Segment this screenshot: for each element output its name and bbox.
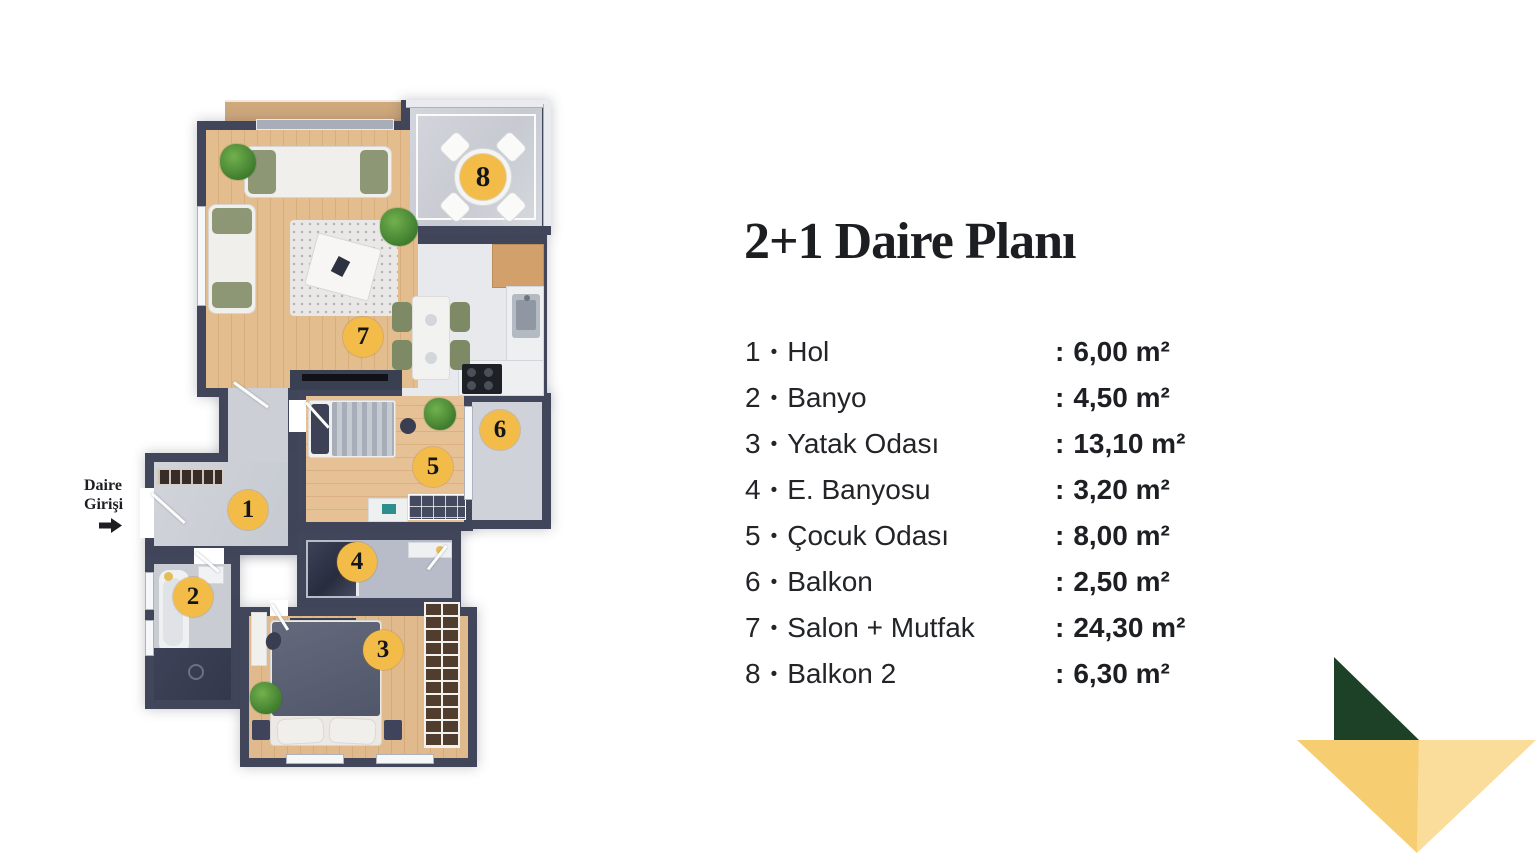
dining-table <box>412 296 450 380</box>
legend-colon: : <box>1055 520 1064 551</box>
legend-area: 13,10 m² <box>1073 428 1185 459</box>
balcony-parapet-top <box>406 100 551 108</box>
bed-blanket <box>332 402 394 456</box>
legend-name: Salon + Mutfak <box>787 612 975 643</box>
legend-item-e-banyosu: 4•E. Banyosu :3,20 m² <box>745 467 1225 513</box>
legend-colon: : <box>1055 428 1064 459</box>
plan-badge-4: 4 <box>337 542 377 582</box>
legend-name: Yatak Odası <box>787 428 939 459</box>
entrance-label: Daire Girişi <box>84 476 123 514</box>
window-bedroom-1 <box>286 754 344 764</box>
corner-decoration <box>1296 657 1536 864</box>
legend-area: 2,50 m² <box>1073 566 1170 597</box>
page: 1 2 3 4 5 6 7 8 Daire Girişi 2+1 Daire P… <box>0 0 1536 864</box>
entrance-label-line2: Girişi <box>84 495 123 514</box>
legend-name: Çocuk Odası <box>787 520 949 551</box>
legend-num: 2 <box>745 382 761 413</box>
legend-separator: • <box>771 342 778 363</box>
sofa-cushion <box>212 282 252 308</box>
legend-item-balkon-2: 8•Balkon 2 :6,30 m² <box>745 651 1225 697</box>
deco-yellow-triangle-light <box>1417 740 1536 853</box>
plan-badge-2: 2 <box>173 577 213 617</box>
legend-area: 8,00 m² <box>1073 520 1170 551</box>
faucet <box>524 295 530 301</box>
kitchen-counter-wood <box>492 244 544 288</box>
plant <box>220 144 256 180</box>
dining-chair <box>450 302 470 332</box>
legend-name: Banyo <box>787 382 866 413</box>
entrance-arrow-icon <box>99 518 123 538</box>
legend-name: E. Banyosu <box>787 474 930 505</box>
legend-item-cocuk-odasi: 5•Çocuk Odası :8,00 m² <box>745 513 1225 559</box>
burner <box>467 368 476 377</box>
legend-separator: • <box>771 664 778 685</box>
legend-area: 6,30 m² <box>1073 658 1170 689</box>
legend-area: 24,30 m² <box>1073 612 1185 643</box>
plan-badge-7: 7 <box>343 317 383 357</box>
nightstand <box>384 720 402 740</box>
dining-chair <box>392 302 412 332</box>
bed-pillow <box>276 717 324 745</box>
legend-name: Hol <box>787 336 829 367</box>
burner <box>467 381 476 390</box>
plate <box>425 352 437 364</box>
legend-separator: • <box>771 526 778 547</box>
sofa-cushion <box>212 208 252 234</box>
legend-area: 4,50 m² <box>1073 382 1170 413</box>
plan-badge-3: 3 <box>363 630 403 670</box>
dining-chair <box>392 340 412 370</box>
legend-colon: : <box>1055 612 1064 643</box>
legend-item-banyo: 2•Banyo :4,50 m² <box>745 375 1225 421</box>
bed-pillow <box>328 717 376 745</box>
legend-colon: : <box>1055 566 1064 597</box>
legend-num: 4 <box>745 474 761 505</box>
wardrobe <box>424 602 460 748</box>
window-bathroom-1 <box>145 572 154 610</box>
plan-badge-6: 6 <box>480 410 520 450</box>
legend-name: Balkon 2 <box>787 658 896 689</box>
legend-separator: • <box>771 388 778 409</box>
rug <box>408 494 466 520</box>
room-legend: 1•Hol :6,00 m² 2•Banyo :4,50 m² 3•Yatak … <box>745 329 1225 697</box>
sink-basin <box>516 300 536 330</box>
legend-item-salon-mutfak: 7•Salon + Mutfak :24,30 m² <box>745 605 1225 651</box>
plant <box>250 682 282 714</box>
window-salon-left <box>197 206 206 306</box>
plate <box>425 314 437 326</box>
legend-num: 1 <box>745 336 761 367</box>
washing-machine <box>188 664 204 680</box>
deco-yellow-triangle-dark <box>1297 740 1419 853</box>
window-child-room <box>464 406 473 500</box>
legend-item-hol: 1•Hol :6,00 m² <box>745 329 1225 375</box>
window-salon-top <box>256 119 394 130</box>
tv <box>302 374 388 381</box>
burner <box>484 381 493 390</box>
vanity-desk <box>251 612 267 666</box>
window-bedroom-2 <box>376 754 434 764</box>
legend-area: 6,00 m² <box>1073 336 1170 367</box>
laptop <box>382 504 396 514</box>
plan-badge-8: 8 <box>460 154 506 200</box>
legend-num: 3 <box>745 428 761 459</box>
door-opening <box>289 400 306 432</box>
balcony-parapet-right <box>543 104 551 226</box>
window-bathroom-2 <box>145 620 154 656</box>
basket <box>164 572 173 581</box>
legend-item-balkon: 6•Balkon :2,50 m² <box>745 559 1225 605</box>
legend-colon: : <box>1055 382 1064 413</box>
sofa-cushion <box>360 150 388 194</box>
legend-num: 8 <box>745 658 761 689</box>
bed-duvet <box>272 622 380 716</box>
legend-separator: • <box>771 572 778 593</box>
plant <box>424 398 456 430</box>
page-title: 2+1 Daire Planı <box>744 212 1075 271</box>
plan-badge-1: 1 <box>228 490 268 530</box>
burner <box>484 368 493 377</box>
entrance-label-line1: Daire <box>84 476 123 495</box>
nightstand <box>252 720 270 740</box>
deco-green-triangle <box>1334 657 1419 740</box>
floor-plan: 1 2 3 4 5 6 7 8 <box>140 100 560 772</box>
legend-name: Balkon <box>787 566 873 597</box>
legend-colon: : <box>1055 474 1064 505</box>
side-table <box>400 418 416 434</box>
legend-area: 3,20 m² <box>1073 474 1170 505</box>
legend-separator: • <box>771 618 778 639</box>
legend-num: 6 <box>745 566 761 597</box>
plan-badge-5: 5 <box>413 447 453 487</box>
legend-num: 7 <box>745 612 761 643</box>
legend-item-yatak-odasi: 3•Yatak Odası :13,10 m² <box>745 421 1225 467</box>
legend-colon: : <box>1055 336 1064 367</box>
legend-separator: • <box>771 434 778 455</box>
legend-num: 5 <box>745 520 761 551</box>
doormat <box>156 468 224 486</box>
plant <box>380 208 418 246</box>
legend-separator: • <box>771 480 778 501</box>
legend-colon: : <box>1055 658 1064 689</box>
